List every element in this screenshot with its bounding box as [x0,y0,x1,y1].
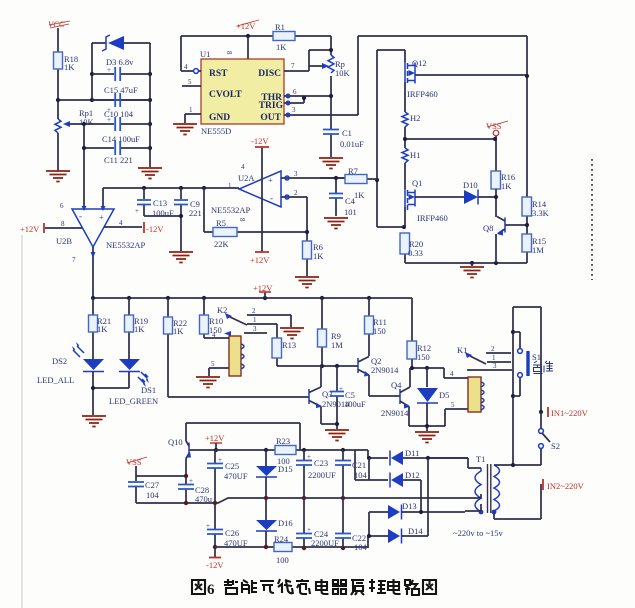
svg-text:D13: D13 [402,501,417,511]
svg-text:H1: H1 [410,150,420,160]
svg-text:+: + [99,212,104,222]
svg-text:1K: 1K [501,181,512,191]
svg-text:6: 6 [293,88,297,96]
svg-text:8: 8 [225,51,233,55]
svg-text:-12V: -12V [251,136,269,146]
svg-text:0.01uF: 0.01uF [340,139,364,149]
svg-text:8: 8 [61,220,65,228]
svg-text:NE5532AP: NE5532AP [106,240,145,250]
svg-text:Q12: Q12 [412,58,427,68]
svg-text:1: 1 [228,182,232,190]
svg-text:3: 3 [253,325,257,333]
svg-text:1K: 1K [354,190,365,200]
svg-text:3: 3 [294,170,298,178]
svg-text:1K: 1K [97,324,108,334]
svg-text:C1: C1 [342,128,352,138]
svg-text:C14 100uF: C14 100uF [102,134,140,144]
svg-text:VSS: VSS [486,121,502,131]
svg-text:1K: 1K [173,326,184,336]
svg-text:1: 1 [189,106,193,114]
svg-text:Q1: Q1 [412,178,422,188]
svg-text:2200UF: 2200UF [311,538,339,548]
svg-text:TRIG: TRIG [259,101,284,111]
svg-text:6: 6 [207,582,215,598]
svg-text:C27: C27 [145,480,159,490]
svg-text:+: + [107,66,111,74]
svg-text:150: 150 [373,326,386,336]
svg-text:+: + [206,522,210,530]
svg-text:104: 104 [354,470,368,480]
svg-text:1: 1 [492,354,496,362]
svg-text:22K: 22K [214,239,230,249]
svg-text:-: - [270,193,273,203]
svg-text:IRFP460: IRFP460 [407,89,438,99]
svg-text:R5: R5 [216,218,226,228]
svg-text:-12V: -12V [146,224,164,234]
svg-text:+: + [218,456,222,464]
svg-text:4: 4 [212,331,216,339]
svg-text:6: 6 [60,202,64,210]
svg-text:1: 1 [253,316,257,324]
svg-text:470UF: 470UF [224,471,248,481]
svg-text:OUT: OUT [260,113,281,123]
svg-text:Q4: Q4 [391,380,402,390]
svg-text:7: 7 [72,256,76,264]
svg-text:C23: C23 [314,458,328,468]
svg-text:100: 100 [276,555,289,565]
svg-text:100uF: 100uF [344,399,366,409]
svg-text:D10: D10 [463,180,478,190]
svg-text:3: 3 [493,362,497,370]
svg-text:U1: U1 [200,49,210,59]
svg-text:R1: R1 [275,22,285,32]
svg-text:2N9014: 2N9014 [381,408,409,418]
svg-text:4: 4 [241,163,245,171]
svg-text:221: 221 [189,208,202,218]
svg-text:C26: C26 [225,528,239,538]
svg-text:4: 4 [119,219,123,227]
svg-text:+: + [339,385,343,393]
svg-text:NE555D: NE555D [201,126,231,136]
svg-text:4: 4 [450,370,454,378]
svg-text:1M: 1M [532,245,544,255]
svg-text:R7: R7 [348,166,358,176]
svg-text:D15: D15 [278,464,293,474]
svg-text:3: 3 [292,106,296,114]
svg-text:1K: 1K [276,42,287,52]
svg-text:S2: S2 [551,441,560,451]
svg-text:4: 4 [184,63,188,71]
svg-text:1K: 1K [313,251,324,261]
svg-text:-: - [79,211,82,221]
svg-text:+: + [189,477,193,485]
svg-text:0.33: 0.33 [408,248,423,258]
svg-text:R24: R24 [274,534,289,544]
svg-text:5: 5 [211,360,215,368]
svg-text:VSS: VSS [126,457,142,467]
svg-text:C25: C25 [225,461,239,471]
svg-text:2: 2 [294,189,298,197]
svg-text:LED_ALL: LED_ALL [37,375,74,385]
svg-text:+12V: +12V [236,21,256,31]
svg-text:2N9014: 2N9014 [371,365,399,375]
svg-text:GND: GND [209,113,230,123]
svg-text:+: + [107,116,111,124]
svg-text:+: + [268,175,273,185]
svg-text:CVOLT: CVOLT [209,90,242,100]
svg-text:IN2~220V: IN2~220V [547,481,585,491]
svg-text:5: 5 [451,401,455,409]
svg-text:104: 104 [354,542,368,552]
svg-text:LED_GREEN: LED_GREEN [109,396,158,406]
svg-text:3.3K: 3.3K [532,208,550,218]
svg-text:C13: C13 [153,198,167,208]
svg-text:U2A: U2A [238,173,255,183]
svg-text:C11 221: C11 221 [104,155,133,165]
svg-text:+: + [307,453,311,461]
svg-text:10K: 10K [335,68,351,78]
svg-text:D5: D5 [439,390,449,400]
svg-text:+: + [135,207,139,215]
svg-text:R13: R13 [282,340,296,350]
svg-text:7: 7 [291,62,295,70]
svg-text:1K: 1K [134,324,145,334]
svg-text:2: 2 [491,345,495,353]
svg-text:150: 150 [417,352,430,362]
svg-text:Q8: Q8 [483,223,493,233]
svg-text:D12: D12 [405,470,420,480]
svg-text:IN1~220V: IN1~220V [551,408,589,418]
svg-text:C4: C4 [345,196,356,206]
svg-text:10K: 10K [79,117,95,127]
svg-text:NE5532AP: NE5532AP [211,205,250,215]
svg-text:DS2: DS2 [52,356,67,366]
svg-text:R23: R23 [276,436,290,446]
svg-text:S1: S1 [532,352,541,362]
svg-text:U2B: U2B [56,236,72,246]
svg-text:1M: 1M [331,340,343,350]
svg-text:-12V: -12V [206,560,224,570]
svg-text:D11: D11 [405,448,419,458]
svg-text:DISC: DISC [258,69,281,79]
svg-text:2: 2 [252,307,256,315]
svg-text:Q3: Q3 [322,389,332,399]
svg-text:+: + [307,526,311,534]
svg-text:8: 8 [238,218,246,222]
svg-text:IRFP460: IRFP460 [417,213,448,223]
svg-text:DS1: DS1 [141,385,156,395]
svg-text:T1: T1 [476,454,485,464]
svg-text:1K: 1K [64,62,75,72]
svg-text:H2: H2 [410,113,420,123]
svg-text:Q10: Q10 [168,437,183,447]
svg-text:2200UF: 2200UF [308,470,336,480]
svg-text:D16: D16 [278,518,293,528]
svg-text:+12V: +12V [20,224,40,234]
svg-text:RST: RST [209,69,228,79]
svg-text:5: 5 [188,78,192,86]
svg-text:101: 101 [344,207,357,217]
svg-text:+12V: +12V [250,255,270,265]
svg-text:104: 104 [146,490,160,500]
svg-text:D14: D14 [408,526,423,536]
svg-text:~220v to ~15v: ~220v to ~15v [453,528,504,538]
svg-text:+12V: +12V [205,433,225,443]
